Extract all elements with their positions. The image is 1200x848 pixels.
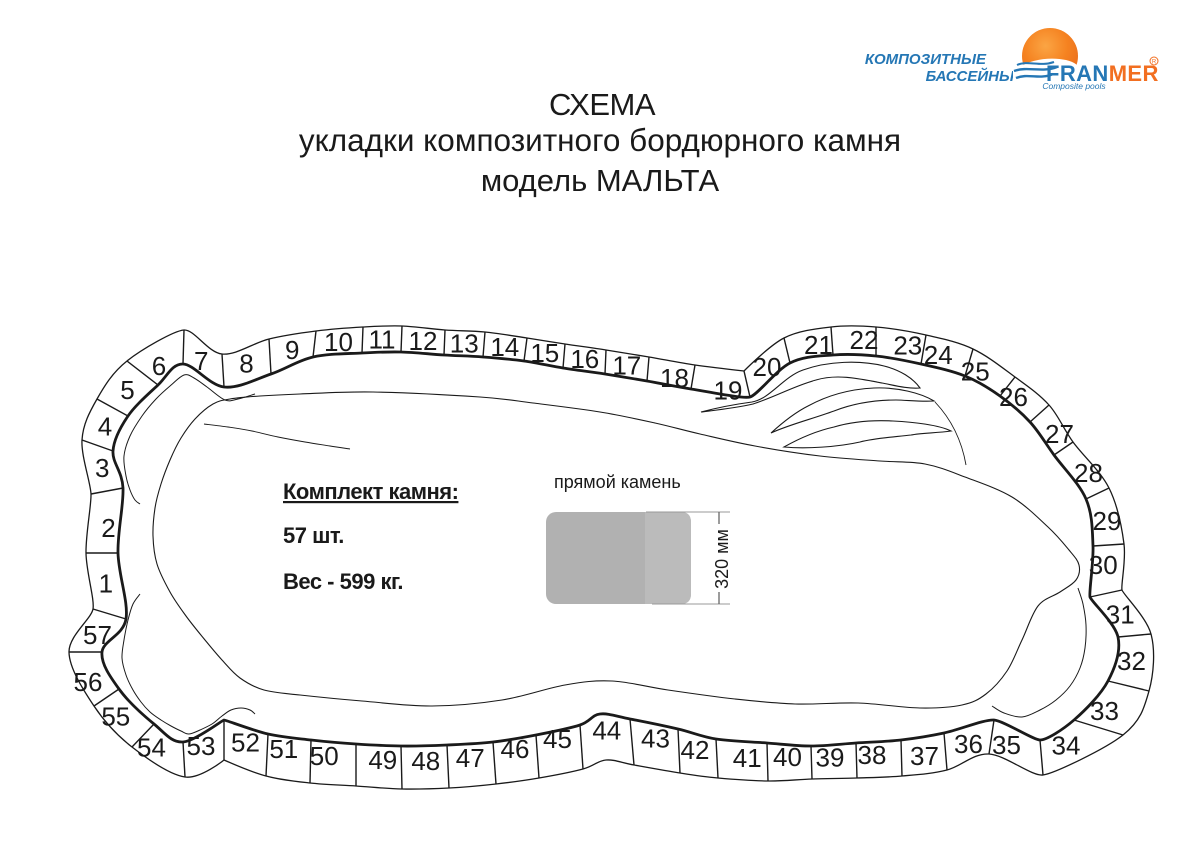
svg-text:21: 21 bbox=[804, 330, 833, 360]
svg-text:48: 48 bbox=[411, 746, 440, 776]
svg-text:1: 1 bbox=[99, 569, 113, 599]
svg-text:11: 11 bbox=[369, 325, 396, 355]
svg-text:49: 49 bbox=[368, 745, 397, 775]
svg-text:54: 54 bbox=[137, 733, 166, 763]
svg-text:27: 27 bbox=[1045, 419, 1074, 449]
svg-text:16: 16 bbox=[570, 344, 599, 374]
svg-text:14: 14 bbox=[490, 332, 519, 362]
svg-text:10: 10 bbox=[324, 327, 353, 357]
svg-text:4: 4 bbox=[98, 412, 112, 442]
svg-text:46: 46 bbox=[501, 734, 530, 764]
svg-text:38: 38 bbox=[858, 740, 887, 770]
svg-text:19: 19 bbox=[714, 376, 743, 406]
svg-text:53: 53 bbox=[187, 731, 216, 761]
svg-text:укладки композитного бордюрног: укладки композитного бордюрного камня bbox=[299, 122, 901, 158]
svg-text:44: 44 bbox=[592, 716, 621, 746]
svg-text:37: 37 bbox=[910, 741, 939, 771]
svg-text:43: 43 bbox=[641, 724, 670, 754]
svg-text:15: 15 bbox=[530, 338, 559, 368]
svg-text:БАССЕЙНЫ: БАССЕЙНЫ bbox=[926, 67, 1015, 85]
svg-text:прямой камень: прямой камень bbox=[554, 472, 681, 492]
svg-text:31: 31 bbox=[1106, 600, 1135, 630]
svg-text:35: 35 bbox=[992, 730, 1021, 760]
svg-text:20: 20 bbox=[753, 352, 782, 382]
svg-text:52: 52 bbox=[231, 728, 260, 758]
svg-text:3: 3 bbox=[95, 453, 109, 483]
svg-text:320 мм: 320 мм bbox=[712, 529, 732, 589]
svg-text:56: 56 bbox=[74, 667, 103, 697]
svg-text:Комплект камня:: Комплект камня: bbox=[283, 479, 458, 504]
svg-text:R: R bbox=[1152, 60, 1157, 66]
svg-text:50: 50 bbox=[310, 741, 339, 771]
svg-text:42: 42 bbox=[681, 735, 710, 765]
svg-text:45: 45 bbox=[543, 724, 572, 754]
svg-text:33: 33 bbox=[1090, 696, 1119, 726]
svg-text:39: 39 bbox=[816, 743, 845, 773]
svg-text:модель МАЛЬТА: модель МАЛЬТА bbox=[481, 163, 720, 198]
svg-text:23: 23 bbox=[893, 331, 922, 361]
svg-text:57: 57 bbox=[83, 620, 112, 650]
svg-text:41: 41 bbox=[733, 743, 762, 773]
svg-text:57 шт.: 57 шт. bbox=[283, 523, 344, 548]
svg-text:Composite pools: Composite pools bbox=[1042, 81, 1106, 91]
svg-text:55: 55 bbox=[101, 702, 130, 732]
svg-text:29: 29 bbox=[1093, 506, 1122, 536]
svg-text:51: 51 bbox=[269, 734, 298, 764]
svg-text:25: 25 bbox=[961, 357, 990, 387]
svg-text:28: 28 bbox=[1074, 458, 1103, 488]
svg-text:КОМПОЗИТНЫЕ: КОМПОЗИТНЫЕ bbox=[865, 51, 987, 68]
svg-text:30: 30 bbox=[1089, 550, 1118, 580]
svg-text:9: 9 bbox=[285, 335, 299, 365]
svg-text:6: 6 bbox=[152, 351, 166, 381]
svg-text:32: 32 bbox=[1117, 646, 1146, 676]
svg-text:36: 36 bbox=[954, 729, 983, 759]
svg-text:13: 13 bbox=[450, 329, 479, 359]
svg-text:СХЕМА: СХЕМА bbox=[549, 87, 656, 122]
svg-text:7: 7 bbox=[194, 346, 208, 376]
svg-text:Вес - 599 кг.: Вес - 599 кг. bbox=[283, 569, 403, 594]
svg-text:26: 26 bbox=[999, 382, 1028, 412]
svg-text:34: 34 bbox=[1052, 731, 1081, 761]
svg-text:12: 12 bbox=[409, 326, 438, 356]
svg-text:22: 22 bbox=[850, 325, 879, 355]
svg-text:17: 17 bbox=[612, 351, 641, 381]
svg-text:40: 40 bbox=[773, 742, 802, 772]
svg-text:2: 2 bbox=[101, 513, 115, 543]
svg-text:5: 5 bbox=[120, 375, 134, 405]
svg-text:47: 47 bbox=[456, 743, 485, 773]
svg-text:24: 24 bbox=[924, 340, 953, 370]
svg-text:8: 8 bbox=[239, 349, 253, 379]
svg-text:18: 18 bbox=[660, 363, 689, 393]
